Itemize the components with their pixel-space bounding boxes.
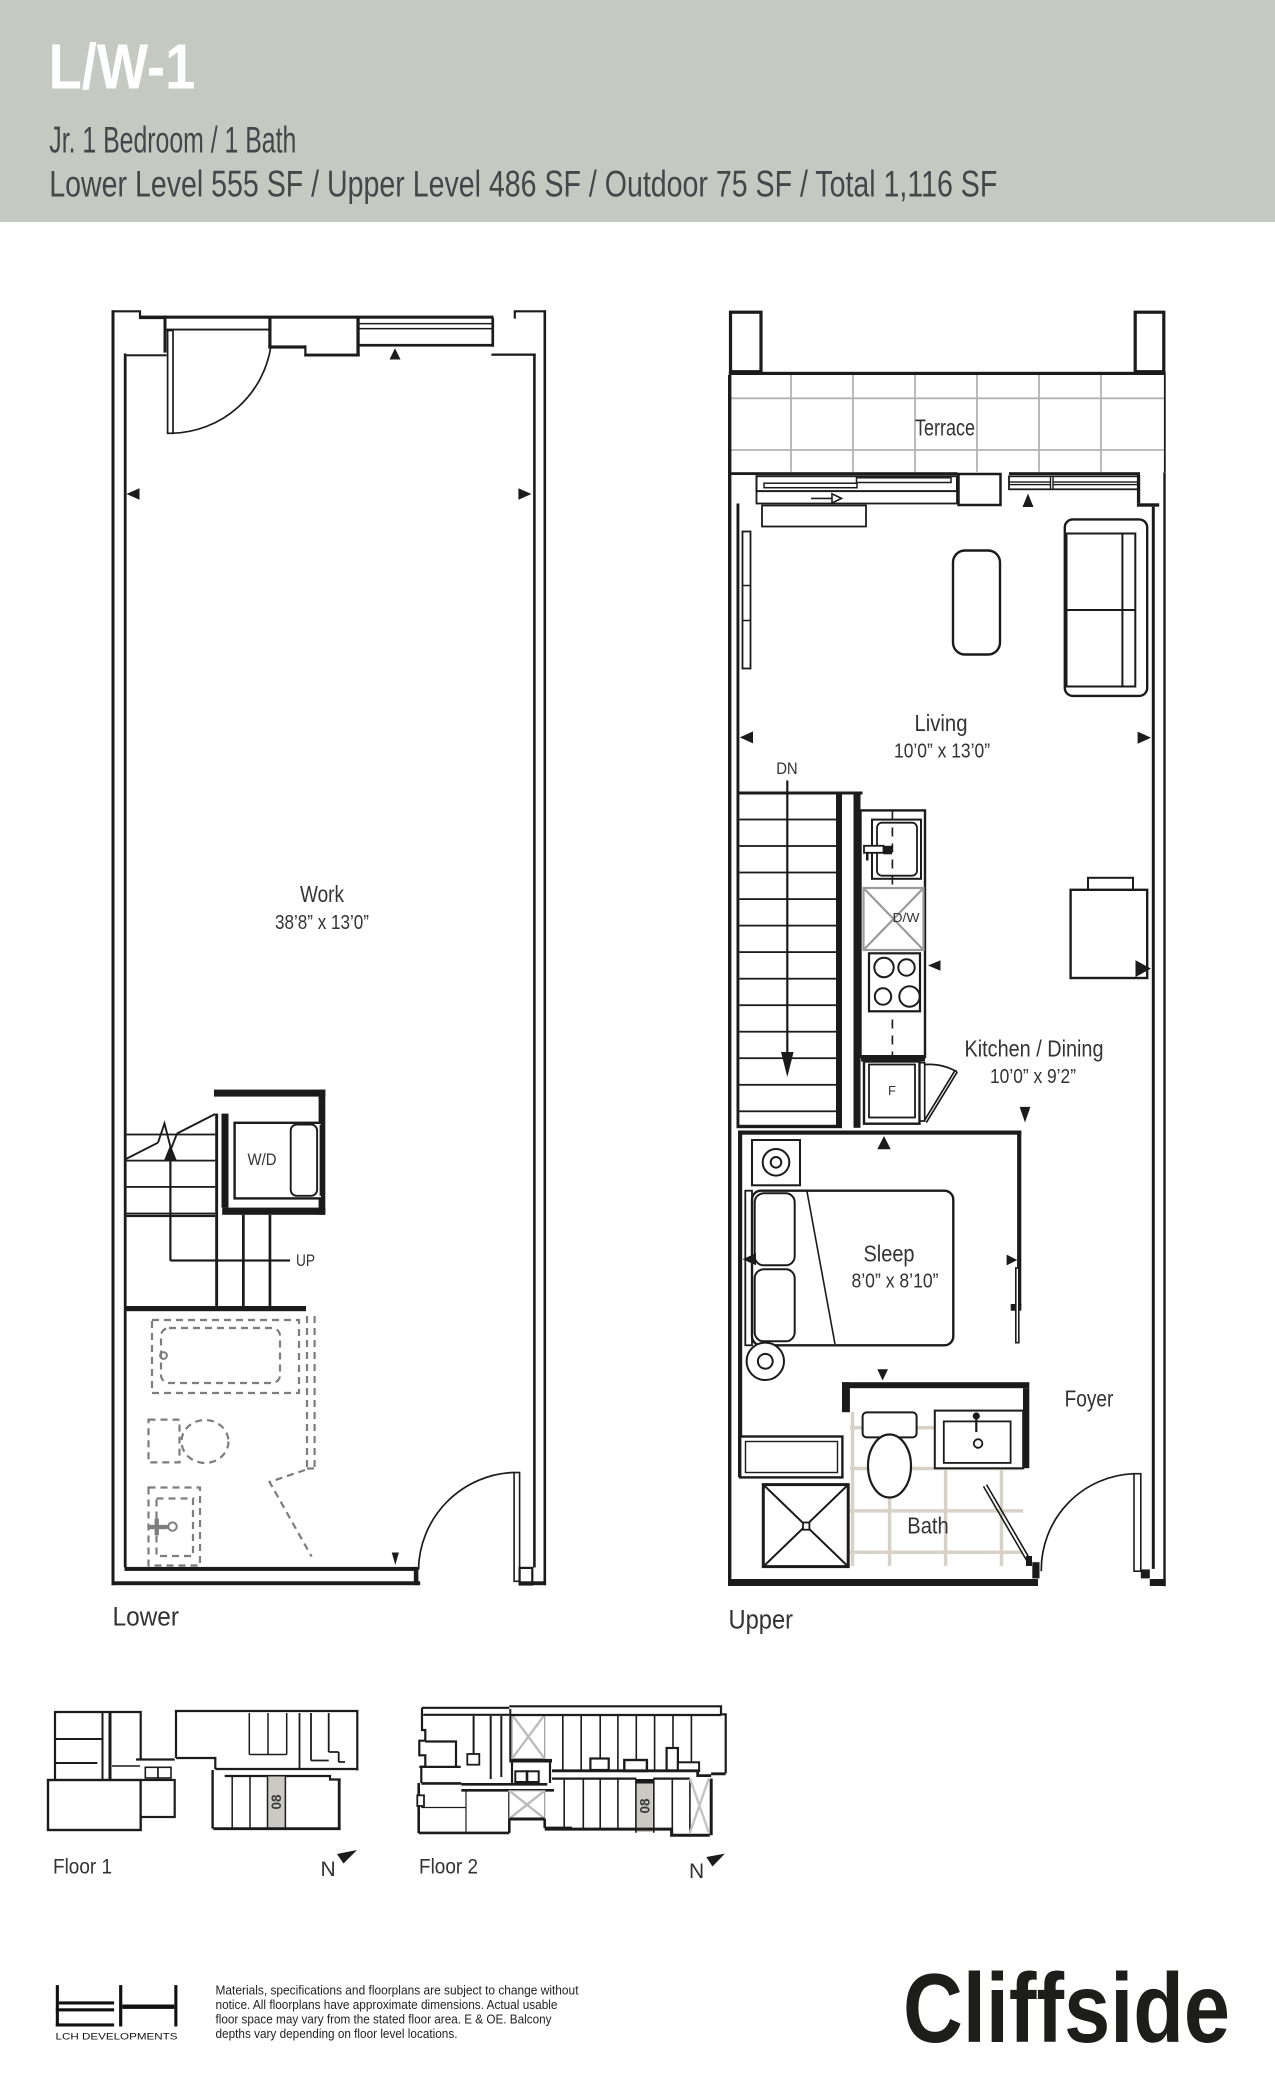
svg-text:Terrace: Terrace — [915, 415, 975, 441]
svg-text:depths vary depending on floor: depths vary depending on floor level loc… — [216, 2026, 458, 2041]
svg-text:Work: Work — [300, 881, 344, 907]
svg-text:10’0” x 13’0”: 10’0” x 13’0” — [894, 740, 990, 763]
svg-text:38’8” x 13’0”: 38’8” x 13’0” — [275, 911, 369, 934]
svg-text:Lower Level 555 SF / Upper: Lower Level 555 SF / Upper Level 486 SF … — [49, 163, 997, 204]
svg-text:Floor 2: Floor 2 — [419, 1856, 478, 1879]
svg-text:8’0” x 8’10”: 8’0” x 8’10” — [852, 1270, 939, 1293]
svg-text:Living: Living — [915, 710, 968, 736]
svg-text:DN: DN — [776, 759, 798, 778]
svg-text:Cliffside: Cliffside — [903, 1953, 1230, 2063]
svg-text:Lower: Lower — [113, 1602, 180, 1632]
svg-text:F: F — [888, 1083, 896, 1098]
svg-text:08: 08 — [269, 1794, 284, 1810]
svg-text:floor space may vary from the: floor space may vary from the stated flo… — [216, 2012, 552, 2027]
svg-text:Sleep: Sleep — [864, 1241, 915, 1267]
svg-text:Bath: Bath — [907, 1513, 949, 1539]
svg-text:N: N — [321, 1858, 336, 1881]
svg-text:L/W-1: L/W-1 — [49, 31, 196, 103]
svg-text:Jr. 1 Bedroom / 1 Bath: Jr. 1 Bedroom / 1 Bath — [49, 120, 296, 161]
svg-text:Kitchen / Dining: Kitchen / Dining — [965, 1036, 1104, 1062]
svg-text:08: 08 — [637, 1798, 652, 1814]
svg-text:N: N — [689, 1860, 704, 1883]
svg-text:10’0” x 9’2”: 10’0” x 9’2” — [990, 1065, 1076, 1088]
svg-text:UP: UP — [296, 1251, 315, 1270]
svg-text:Floor 1: Floor 1 — [53, 1856, 112, 1879]
svg-text:W/D: W/D — [248, 1150, 277, 1169]
svg-text:LCH DEVELOPMENTS: LCH DEVELOPMENTS — [56, 2032, 178, 2043]
svg-text:Foyer: Foyer — [1065, 1386, 1114, 1412]
svg-text:Materials, specifications and: Materials, specifications and floorplans… — [216, 1982, 579, 1997]
svg-text:D/W: D/W — [893, 910, 921, 925]
svg-text:notice. All floorplans have ap: notice. All floorplans have approximate … — [216, 1997, 558, 2012]
svg-text:Upper: Upper — [729, 1605, 794, 1635]
